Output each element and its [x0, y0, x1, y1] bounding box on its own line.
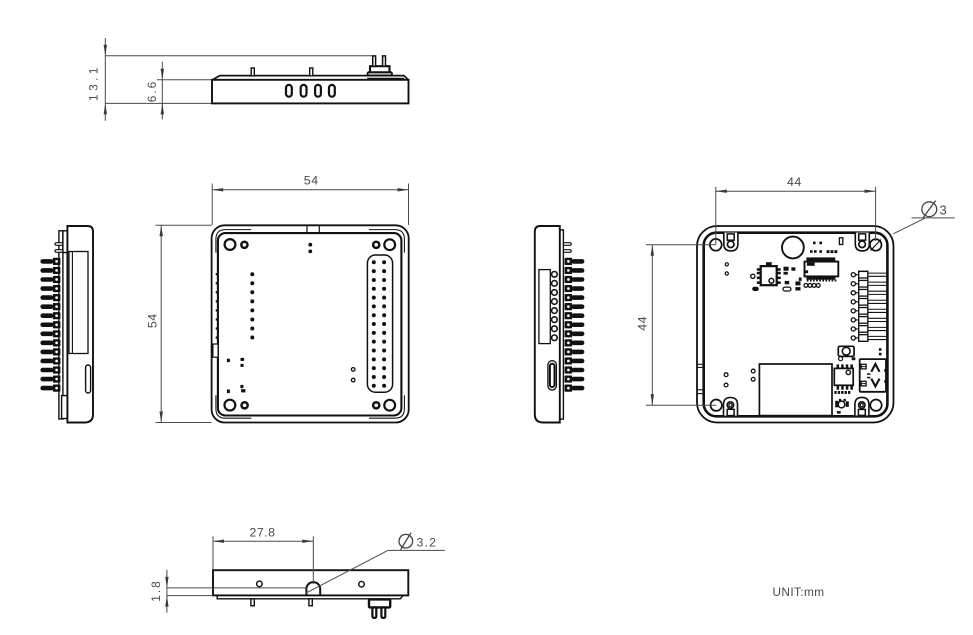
svg-text:13.1: 13.1: [87, 64, 101, 101]
svg-text:54: 54: [304, 174, 319, 188]
svg-text:UNIT:mm: UNIT:mm: [773, 585, 825, 599]
svg-text:3: 3: [940, 202, 947, 217]
svg-text:44: 44: [787, 175, 802, 189]
svg-text:44: 44: [636, 316, 650, 331]
svg-text:6.6: 6.6: [145, 80, 159, 102]
svg-text:54: 54: [146, 313, 160, 328]
svg-text:27.8: 27.8: [250, 526, 276, 540]
svg-text:1.8: 1.8: [149, 579, 163, 601]
svg-text:3.2: 3.2: [417, 536, 438, 550]
